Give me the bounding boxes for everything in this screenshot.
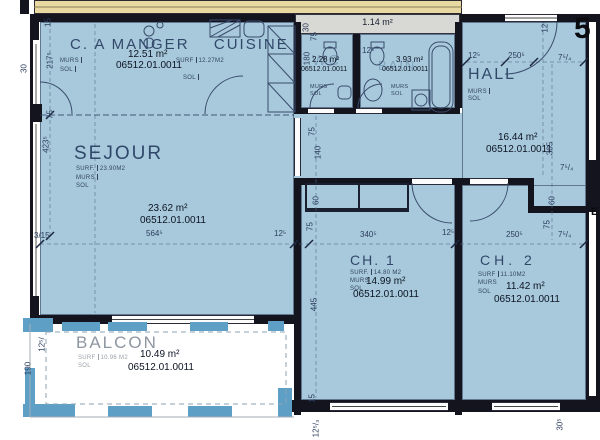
wall-ch1-ch2 (455, 178, 462, 415)
dim-label: 250⁵ (506, 230, 523, 239)
area-sejour: 23.62 m² (148, 203, 187, 214)
label-sol-hall: SOL (468, 96, 481, 102)
label-murs-hall: MURS (468, 88, 492, 95)
room-title-dining: C. A MANGER CUISINE (70, 36, 289, 53)
wall-stub (586, 160, 600, 212)
area-bain: 3.93 m² (396, 55, 423, 64)
unit-id-ch2: 06512.01.0011 (494, 294, 560, 305)
ch2-door-threshold (470, 178, 508, 185)
label-surf-balcon: SURF10.96 M2 (78, 354, 128, 361)
dim-label: 180 (307, 54, 324, 63)
dim-label: 250⁵ (508, 51, 525, 60)
dim-label: 12⁵ (545, 22, 562, 31)
wall-hall-ch2 (528, 206, 586, 213)
label-sol-ch2: SOL (478, 289, 491, 295)
floor-plan: C. A MANGER CUISINE 12.51 m² 06512.01.00… (0, 0, 600, 440)
label-murs-sejour: MURS (76, 174, 100, 181)
balcony-railing (188, 406, 232, 417)
balcony-railing (190, 322, 228, 331)
unit-id-bain: 06512.01.0011 (382, 66, 428, 73)
area-ch2: 11.42 m² (506, 281, 545, 292)
area-balcon: 10.49 m² (140, 349, 179, 360)
balcony-railing (108, 322, 147, 331)
label-surf-dining: SURF12.27M2 (176, 57, 224, 64)
label-sol-bain: SOL (391, 91, 403, 97)
wall-stub (30, 14, 39, 40)
dim-label: 7⁵/₄ (560, 163, 573, 172)
unit-id-ch1: 06512.01.0011 (353, 289, 419, 300)
ch1-door-threshold (412, 178, 452, 185)
dim-label: 340⁵ (360, 230, 377, 239)
label-surf-ch1: SURF.14.80 M2 (350, 269, 401, 276)
room-title-cuisine-text: CUISINE (214, 36, 289, 53)
dim-label: 12⁵ (442, 228, 454, 237)
dim-label: 140 (318, 148, 335, 157)
area-ch1: 14.99 m² (366, 276, 405, 287)
dim-label: 423⁵ (46, 140, 63, 149)
unit-id-dining: 06512.01.0011 (116, 60, 182, 71)
bain-door-threshold (356, 108, 382, 114)
label-surf-sejour: SURF.23.90M2 (76, 165, 125, 172)
wall-stub (30, 104, 42, 122)
wall-right-inner (586, 14, 589, 412)
label-murs-bain: MURS (391, 84, 408, 90)
edge-letter: E (591, 206, 598, 218)
dim-label: 30 (24, 64, 41, 73)
dim-label: 365 (550, 144, 567, 153)
dim-label: 75 (547, 220, 564, 229)
wall-top-left (30, 14, 295, 22)
wall-sejour-ch1 (294, 178, 301, 415)
unit-id-balcon: 06512.01.0011 (128, 362, 194, 373)
dim-label: 190 (28, 364, 45, 373)
wall (20, 0, 29, 14)
dim-label: 75 (50, 110, 67, 119)
sheet-number: 5 (574, 12, 591, 46)
dim-label: 3/15 (34, 231, 50, 240)
dim-label: 7⁵/₄ (558, 230, 571, 239)
area-hall: 16.44 m² (498, 132, 537, 143)
dim-label: 12⁵/₃ (316, 424, 333, 433)
sejour-corridor-opening (294, 118, 301, 176)
room-title-ch1: CH. 1 (350, 252, 396, 268)
wc-door-threshold (308, 108, 334, 114)
room-title-hall: HALL (468, 66, 516, 84)
wall-left-outer (30, 14, 33, 324)
label-sol-balcon: SOL (78, 363, 91, 369)
label-sol-wc: SOL (310, 91, 322, 97)
wall-bain-hall (455, 22, 462, 108)
dim-label: 217⁵ (50, 56, 67, 65)
dim-label: 12⁵ (362, 46, 374, 55)
window-ch2 (492, 402, 560, 411)
label-murs-wc: MURS (310, 84, 327, 90)
area-dining: 12.51 m² (128, 49, 167, 60)
balcony-railing (62, 322, 100, 331)
label-sol: SOL (60, 66, 78, 73)
dim-label: 564⁵ (146, 229, 163, 238)
label-murs-ch2: MURS (478, 280, 497, 286)
wall-bedrooms-top (452, 178, 470, 185)
label-sol2-dining: SOL (183, 74, 201, 81)
dim-label: 75 (314, 32, 331, 41)
dim-label: 15 (312, 394, 329, 403)
dim-label: 60 (316, 196, 333, 205)
dim-label: 12⁵ (468, 51, 480, 60)
balcony-railing (268, 321, 284, 331)
window-ch1 (330, 402, 448, 411)
closet-divider (358, 185, 360, 208)
balcony-railing (278, 388, 292, 417)
wall-stub (586, 396, 600, 412)
dim-label: 12⁵/ (42, 340, 59, 349)
dim-label: 15 (48, 18, 65, 27)
upper-slab-band (34, 0, 462, 14)
dim-label: 445 (314, 300, 331, 309)
label-surf-ch2: SURF11.10M2 (478, 271, 526, 278)
dim-label: 7⁵/₄ (558, 53, 571, 62)
unit-id-sejour: 06512.01.0011 (140, 215, 206, 226)
balcony-railing (108, 406, 152, 417)
dim-label: 60 (552, 196, 569, 205)
balcony-railing (23, 404, 75, 417)
room-title-ch2: CH. 2 (480, 252, 536, 268)
unit-id-hall: 06512.01.0011 (486, 144, 552, 155)
dim-label: 75 (310, 222, 327, 231)
dim-label: 30⁵ (560, 420, 577, 429)
dim-label: 30 (306, 23, 323, 32)
dim-label: 12⁵ (274, 229, 286, 238)
label-sol-sejour: SOL (76, 183, 89, 189)
room-title-sejour: SEJOUR (74, 143, 163, 165)
wall-wc-bain (353, 34, 360, 108)
wall-kitchen-wc (294, 22, 301, 113)
